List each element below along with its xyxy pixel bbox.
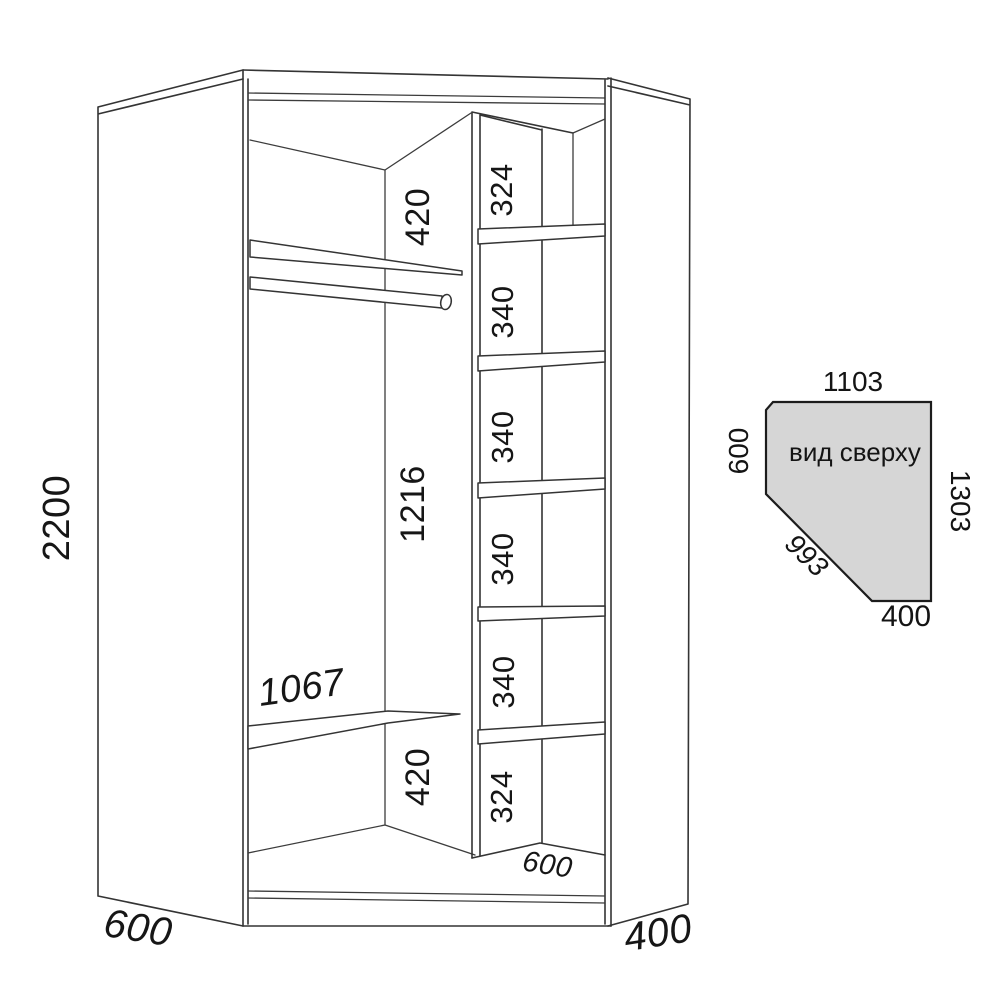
dim-left-section-bottom: 420 bbox=[399, 748, 437, 806]
dim-right-side-depth: 400 bbox=[621, 906, 695, 960]
corner-wardrobe-drawing: 2200 600 400 1067 420 1216 420 324 340 3… bbox=[0, 0, 1000, 1000]
column-shelf-4 bbox=[478, 606, 605, 621]
dim-shelf-width: 1067 bbox=[256, 661, 349, 715]
top-rail bbox=[248, 93, 605, 104]
dim-left-side-width: 600 bbox=[101, 901, 175, 955]
dim-right-edge: 1303 bbox=[945, 470, 976, 532]
dim-column-section-1: 324 bbox=[484, 163, 519, 216]
back-wall-bottom-edges bbox=[248, 825, 475, 855]
left-panel-outline bbox=[98, 70, 243, 926]
top-panel bbox=[243, 70, 608, 104]
hanging-rod bbox=[250, 277, 442, 308]
dim-column-section-2: 340 bbox=[485, 285, 520, 338]
back-wall-top-edges bbox=[250, 113, 471, 170]
dim-column-section-3: 340 bbox=[485, 410, 520, 463]
right-panel-outline bbox=[608, 78, 690, 926]
wide-shelf-1067 bbox=[248, 711, 460, 749]
left-side-panel bbox=[98, 70, 248, 926]
wardrobe-diagram-svg: 2200 600 400 1067 420 1216 420 324 340 3… bbox=[0, 0, 1000, 1000]
dim-column-section-5: 340 bbox=[486, 655, 521, 708]
dim-column-depth: 600 bbox=[520, 845, 574, 884]
front-view-dimensions: 2200 600 400 1067 420 1216 420 324 340 3… bbox=[36, 163, 695, 960]
top-front-edge bbox=[243, 70, 608, 79]
dim-left-edge: 600 bbox=[723, 428, 754, 475]
column-back-corner bbox=[573, 119, 605, 229]
back-corner-walls bbox=[248, 113, 475, 855]
front-right-edge bbox=[605, 78, 611, 926]
front-left-edge bbox=[243, 70, 248, 926]
top-view: вид сверху 1103 600 1303 993 400 bbox=[723, 366, 976, 633]
dim-left-section-middle: 1216 bbox=[394, 465, 432, 543]
dim-top-edge: 1103 bbox=[823, 366, 883, 397]
top-view-title: вид сверху bbox=[789, 437, 921, 467]
dim-left-section-top: 420 bbox=[399, 188, 437, 246]
deck-front-edge bbox=[248, 891, 605, 903]
bottom-deck bbox=[243, 891, 611, 926]
right-side-panel bbox=[605, 78, 690, 926]
top-view-outline bbox=[766, 402, 931, 601]
dim-overall-height: 2200 bbox=[36, 475, 78, 562]
dim-column-section-6: 324 bbox=[484, 770, 519, 823]
dim-column-section-4: 340 bbox=[485, 532, 520, 585]
dim-bottom-edge: 400 bbox=[881, 600, 931, 633]
front-view: 2200 600 400 1067 420 1216 420 324 340 3… bbox=[36, 70, 695, 960]
